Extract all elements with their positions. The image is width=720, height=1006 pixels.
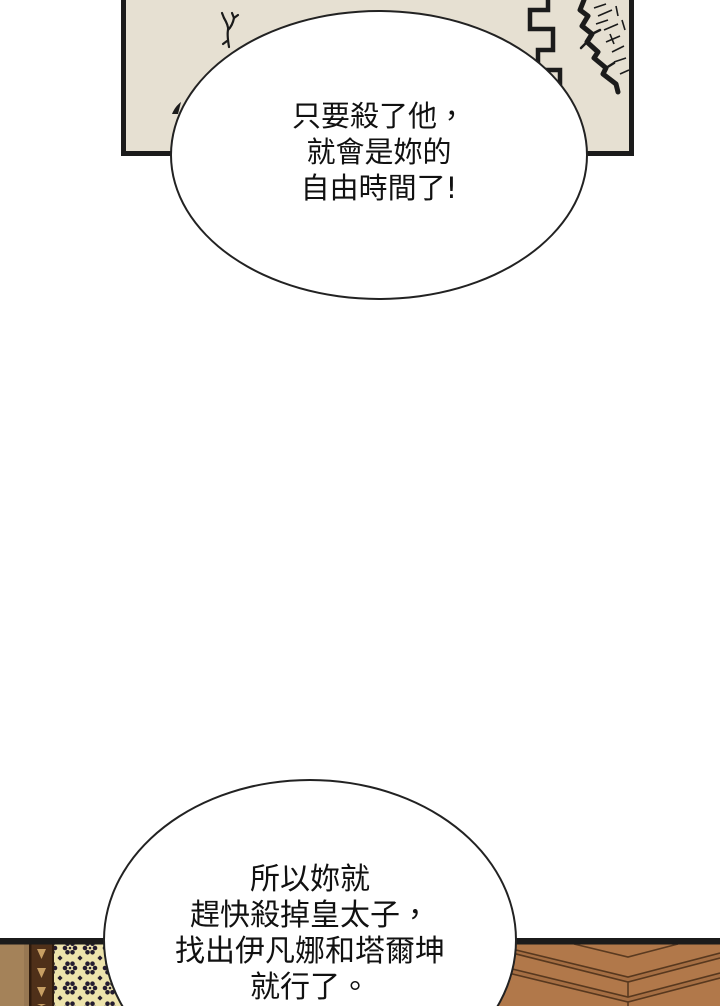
speech-bubble-top: 只要殺了他， 就會是妳的 自由時間了! bbox=[170, 10, 588, 300]
bubble-text-line: 只要殺了他， bbox=[172, 98, 586, 134]
comic-page: 只要殺了他， 就會是妳的 自由時間了! 所以妳就 趕快殺掉皇太子， 找出伊凡娜和… bbox=[0, 0, 720, 1006]
twig-sketch bbox=[222, 13, 238, 47]
rock-sketch bbox=[580, 0, 629, 92]
speech-bubble-bottom-text: 所以妳就 趕快殺掉皇太子， 找出伊凡娜和塔爾坤 就行了。 bbox=[105, 862, 515, 1006]
bubble-text-line: 就行了。 bbox=[105, 970, 515, 1006]
pillar-edge-line bbox=[29, 944, 32, 1006]
bubble-text-line: 就會是妳的 bbox=[172, 134, 586, 170]
speech-bubble-bottom: 所以妳就 趕快殺掉皇太子， 找出伊凡娜和塔爾坤 就行了。 bbox=[103, 779, 517, 1006]
speech-bubble-top-text: 只要殺了他， 就會是妳的 自由時間了! bbox=[172, 98, 586, 206]
pillar-shade bbox=[24, 944, 29, 1006]
carved-column-art bbox=[32, 944, 55, 1006]
bubble-text-line: 趕快殺掉皇太子， bbox=[105, 898, 515, 934]
bubble-text-line: 找出伊凡娜和塔爾坤 bbox=[105, 934, 515, 970]
bubble-text-line: 自由時間了! bbox=[172, 170, 586, 206]
bubble-text-line: 所以妳就 bbox=[105, 862, 515, 898]
